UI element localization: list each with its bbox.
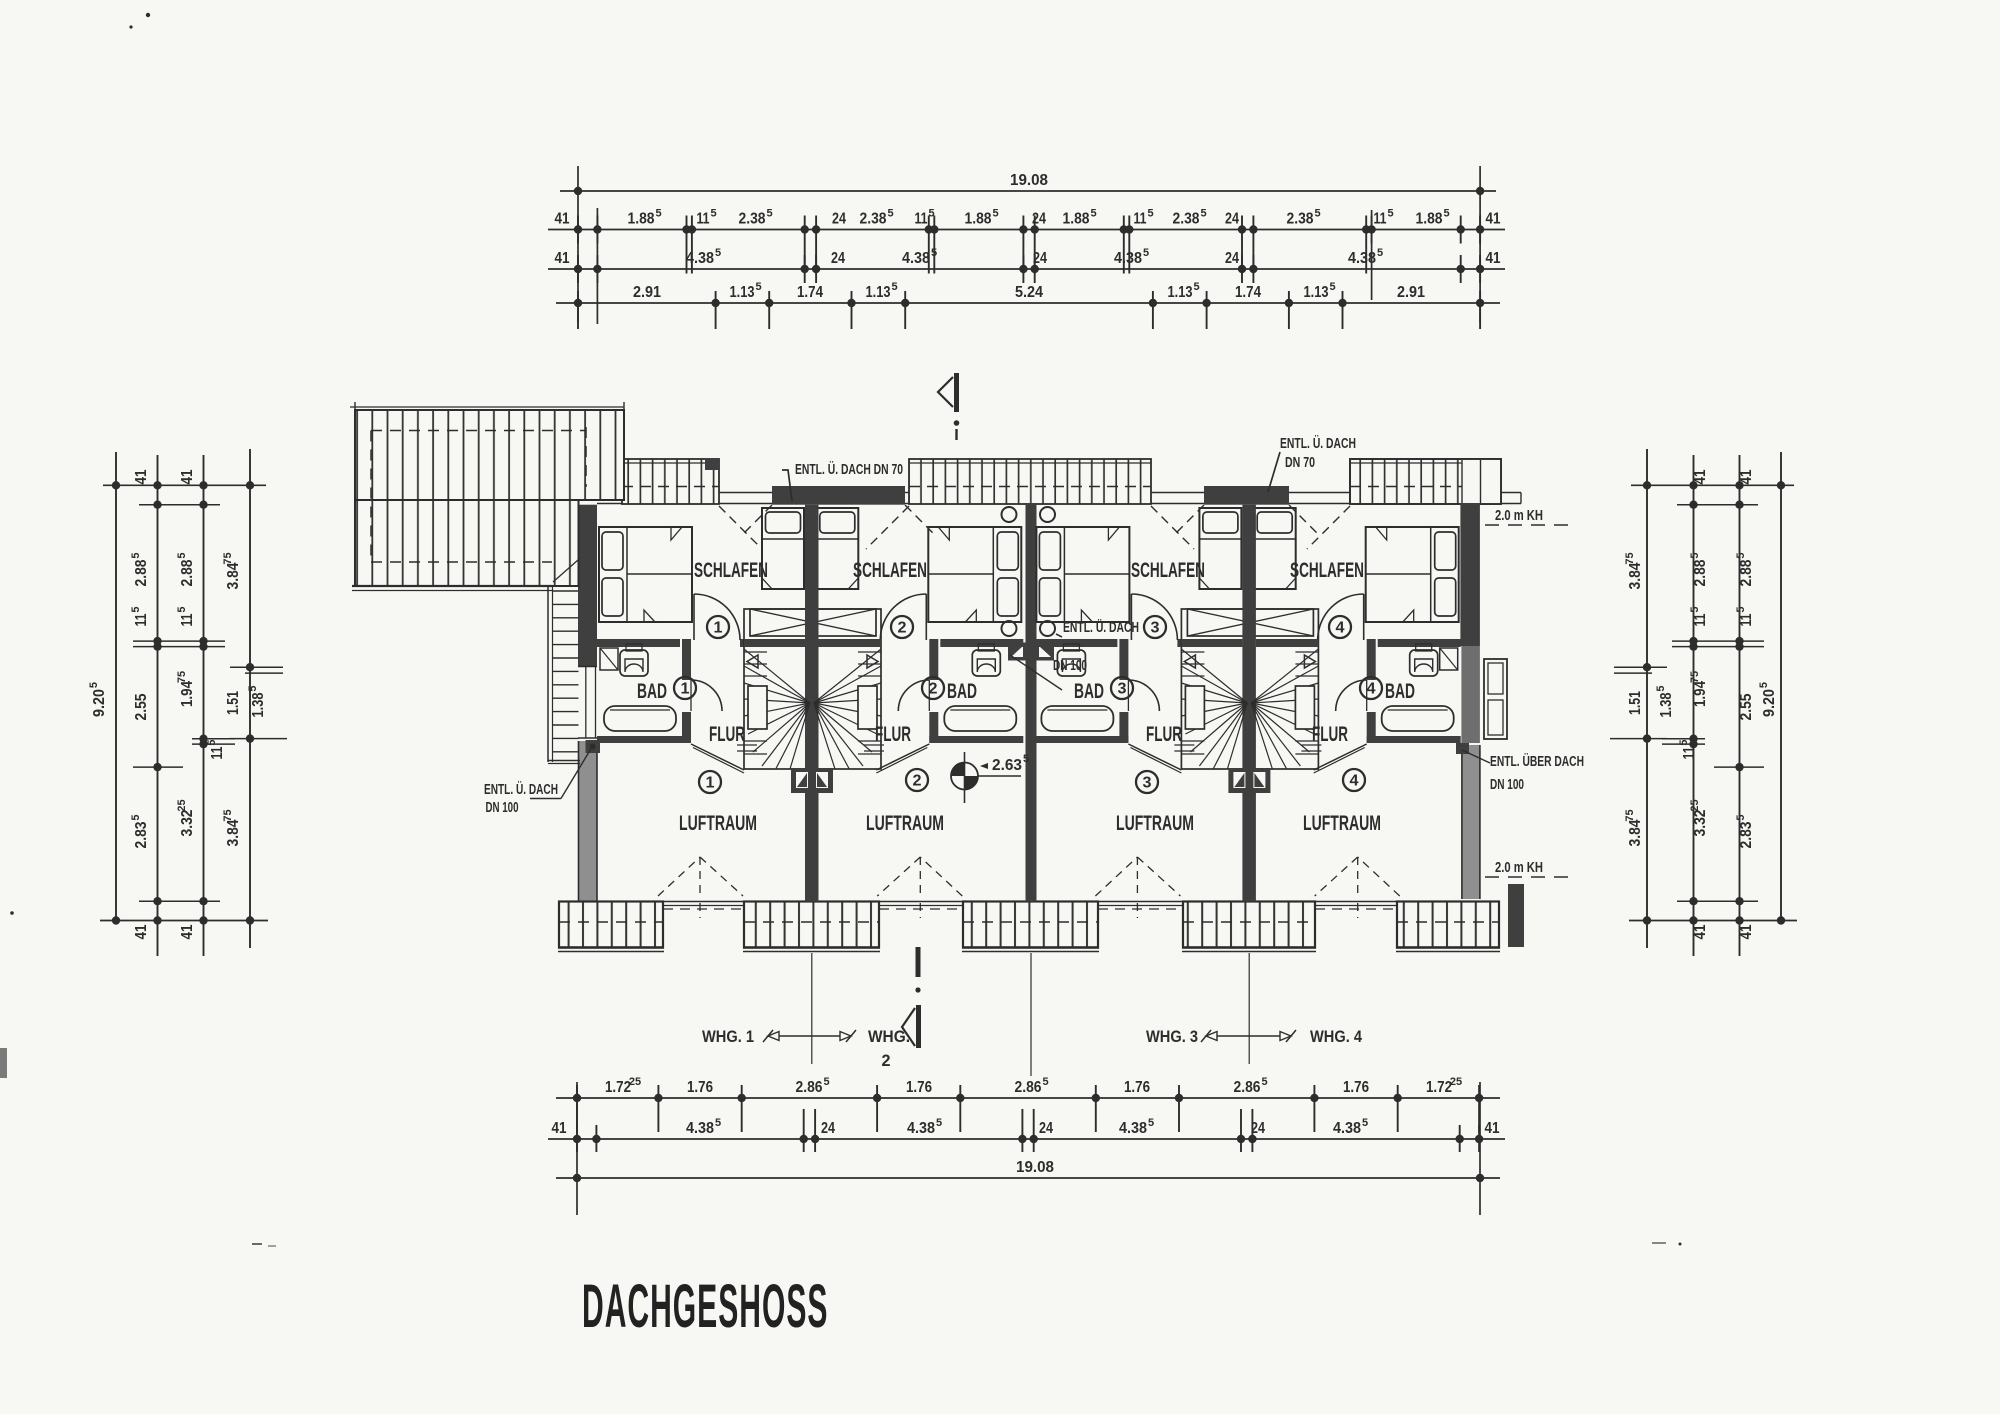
svg-text:3: 3: [1118, 681, 1127, 698]
svg-text:FLUR: FLUR: [1312, 723, 1348, 746]
svg-text:75: 75: [222, 552, 234, 564]
svg-text:11: 11: [915, 211, 928, 228]
svg-text:5: 5: [936, 1117, 942, 1129]
svg-text:5.24: 5.24: [1015, 284, 1043, 301]
svg-text:41: 41: [179, 924, 196, 939]
svg-text:11: 11: [133, 613, 150, 626]
svg-text:BAD: BAD: [1385, 680, 1415, 703]
svg-text:WHG.: WHG.: [868, 1027, 910, 1046]
svg-text:2.91: 2.91: [1397, 284, 1425, 301]
svg-text:5: 5: [1023, 753, 1029, 765]
svg-text:5: 5: [715, 1117, 721, 1129]
svg-text:75: 75: [222, 809, 234, 821]
svg-text:3.32: 3.32: [179, 810, 196, 837]
svg-text:1.88: 1.88: [628, 211, 655, 228]
svg-text:BAD: BAD: [637, 680, 667, 703]
svg-text:DN 100: DN 100: [486, 800, 519, 816]
svg-text:LUFTRAUM: LUFTRAUM: [679, 812, 757, 835]
svg-text:2.63: 2.63: [992, 757, 1022, 774]
svg-text:25: 25: [1689, 799, 1701, 811]
svg-text:2: 2: [898, 620, 907, 637]
svg-text:ENTL. ÜBER DACH: ENTL. ÜBER DACH: [1490, 753, 1584, 770]
svg-text:41: 41: [1486, 250, 1501, 267]
svg-text:5: 5: [1735, 552, 1747, 558]
svg-text:24: 24: [1225, 250, 1239, 267]
svg-text:5: 5: [655, 208, 661, 220]
svg-text:25: 25: [1450, 1076, 1462, 1088]
svg-text:41: 41: [1738, 924, 1755, 939]
svg-text:3: 3: [1143, 775, 1152, 792]
svg-text:4.38: 4.38: [686, 1120, 714, 1137]
svg-text:1.74: 1.74: [797, 284, 823, 301]
svg-text:1.38: 1.38: [1658, 692, 1675, 717]
svg-text:2: 2: [929, 681, 938, 698]
svg-text:41: 41: [1486, 211, 1501, 228]
svg-text:1.72: 1.72: [605, 1079, 631, 1096]
svg-text:2.86: 2.86: [796, 1079, 823, 1096]
svg-text:5: 5: [1200, 208, 1206, 220]
svg-text:2.38: 2.38: [739, 211, 766, 228]
svg-text:BAD: BAD: [947, 680, 977, 703]
svg-text:1.76: 1.76: [1343, 1079, 1369, 1096]
svg-text:2.55: 2.55: [133, 693, 150, 720]
svg-text:4.38: 4.38: [1114, 250, 1142, 267]
svg-text:5: 5: [1735, 606, 1747, 612]
svg-text:1.76: 1.76: [1124, 1079, 1150, 1096]
svg-text:11: 11: [697, 211, 710, 228]
svg-text:11: 11: [209, 746, 226, 759]
svg-text:5: 5: [1689, 552, 1701, 558]
svg-text:2.38: 2.38: [1287, 211, 1314, 228]
svg-text:BAD: BAD: [1074, 680, 1104, 703]
svg-text:5: 5: [1042, 1076, 1048, 1088]
svg-text:1.88: 1.88: [1416, 211, 1443, 228]
svg-text:41: 41: [1738, 469, 1755, 484]
svg-text:5: 5: [1735, 814, 1747, 820]
svg-text:24: 24: [1032, 211, 1046, 228]
svg-text:1.72: 1.72: [1426, 1079, 1452, 1096]
svg-text:41: 41: [133, 924, 150, 939]
svg-text:FLUR: FLUR: [709, 723, 745, 746]
svg-text:1.76: 1.76: [906, 1079, 932, 1096]
svg-text:4.38: 4.38: [902, 250, 930, 267]
svg-text:5: 5: [992, 208, 998, 220]
svg-text:SCHLAFEN: SCHLAFEN: [694, 559, 768, 582]
svg-text:24: 24: [1225, 211, 1239, 228]
svg-text:SCHLAFEN: SCHLAFEN: [1131, 559, 1205, 582]
svg-text:5: 5: [1329, 281, 1335, 293]
svg-text:4: 4: [1336, 620, 1345, 637]
svg-text:2.88: 2.88: [1738, 559, 1755, 586]
svg-text:11: 11: [1374, 211, 1387, 228]
svg-text:11: 11: [1134, 211, 1147, 228]
svg-text:3.32: 3.32: [1692, 810, 1709, 837]
svg-text:1.13: 1.13: [866, 284, 891, 301]
svg-text:24: 24: [1033, 250, 1047, 267]
svg-text:19.08: 19.08: [1010, 172, 1048, 189]
svg-text:4.38: 4.38: [1348, 250, 1376, 267]
svg-text:5: 5: [1148, 1117, 1154, 1129]
svg-text:2.88: 2.88: [1692, 559, 1709, 586]
svg-text:75: 75: [176, 671, 188, 683]
svg-text:1.88: 1.88: [1063, 211, 1090, 228]
svg-text:1.38: 1.38: [250, 692, 267, 717]
svg-text:5: 5: [1689, 606, 1701, 612]
svg-text:1: 1: [681, 681, 690, 698]
svg-text:2: 2: [913, 773, 922, 790]
svg-text:5: 5: [891, 281, 897, 293]
svg-text:DACHGESHOSS: DACHGESHOSS: [582, 1272, 828, 1340]
svg-text:5: 5: [715, 247, 721, 259]
svg-text:4.38: 4.38: [686, 250, 714, 267]
svg-text:4.38: 4.38: [1333, 1120, 1361, 1137]
svg-text:5: 5: [931, 247, 937, 259]
svg-text:1.94: 1.94: [179, 681, 196, 707]
svg-text:LUFTRAUM: LUFTRAUM: [866, 812, 944, 835]
svg-text:4: 4: [1350, 773, 1359, 790]
svg-text:4.38: 4.38: [907, 1120, 935, 1137]
svg-text:41: 41: [133, 469, 150, 484]
svg-text:5: 5: [1387, 208, 1393, 220]
svg-text:5: 5: [1314, 208, 1320, 220]
svg-text:WHG. 3: WHG. 3: [1146, 1027, 1198, 1046]
svg-text:5: 5: [130, 552, 142, 558]
svg-text:5: 5: [710, 208, 716, 220]
svg-text:LUFTRAUM: LUFTRAUM: [1303, 812, 1381, 835]
svg-text:2.86: 2.86: [1234, 1079, 1261, 1096]
svg-text:FLUR: FLUR: [1146, 723, 1182, 746]
svg-text:3.84: 3.84: [1627, 562, 1644, 589]
svg-text:ENTL. Ü. DACH: ENTL. Ü. DACH: [484, 781, 558, 798]
svg-text:11: 11: [179, 613, 196, 626]
svg-text:41: 41: [1692, 924, 1709, 939]
svg-text:1.94: 1.94: [1692, 681, 1709, 707]
svg-text:25: 25: [176, 799, 188, 811]
svg-text:41: 41: [555, 211, 570, 228]
svg-text:5: 5: [1261, 1076, 1267, 1088]
svg-text:24: 24: [832, 211, 846, 228]
svg-text:5: 5: [766, 208, 772, 220]
svg-text:24: 24: [821, 1120, 835, 1137]
svg-text:2.88: 2.88: [179, 559, 196, 586]
svg-text:5: 5: [130, 606, 142, 612]
svg-text:5: 5: [247, 685, 259, 691]
svg-text:24: 24: [831, 250, 845, 267]
svg-text:1: 1: [706, 775, 715, 792]
svg-text:11: 11: [1681, 746, 1698, 759]
svg-text:3.84: 3.84: [225, 819, 242, 846]
svg-text:41: 41: [552, 1120, 567, 1137]
svg-text:25: 25: [629, 1076, 641, 1088]
svg-text:1.13: 1.13: [1304, 284, 1329, 301]
svg-text:WHG. 4: WHG. 4: [1310, 1027, 1362, 1046]
svg-text:5: 5: [1377, 247, 1383, 259]
svg-text:3: 3: [1151, 620, 1160, 637]
svg-text:3.84: 3.84: [1627, 819, 1644, 846]
svg-text:DN 70: DN 70: [1285, 455, 1315, 471]
svg-text:75: 75: [1689, 671, 1701, 683]
svg-text:1.76: 1.76: [687, 1079, 713, 1096]
svg-text:5: 5: [823, 1076, 829, 1088]
svg-text:5: 5: [130, 814, 142, 820]
svg-text:WHG. 1: WHG. 1: [702, 1027, 754, 1046]
svg-text:5: 5: [1758, 682, 1770, 688]
svg-text:5: 5: [176, 606, 188, 612]
svg-text:DN 100: DN 100: [1490, 777, 1524, 793]
svg-text:2.91: 2.91: [633, 284, 661, 301]
svg-text:2.88: 2.88: [133, 559, 150, 586]
svg-text:1.13: 1.13: [1168, 284, 1193, 301]
svg-text:5: 5: [1443, 208, 1449, 220]
svg-text:11: 11: [1692, 613, 1709, 626]
svg-text:2.0 m KH: 2.0 m KH: [1495, 508, 1543, 524]
svg-text:24: 24: [1251, 1120, 1265, 1137]
svg-text:2.38: 2.38: [860, 211, 887, 228]
svg-text:2.55: 2.55: [1738, 693, 1755, 720]
svg-text:5: 5: [1655, 685, 1667, 691]
svg-text:1.51: 1.51: [1627, 691, 1644, 715]
svg-text:FLUR: FLUR: [875, 723, 911, 746]
svg-text:5: 5: [88, 682, 100, 688]
svg-text:41: 41: [1485, 1120, 1500, 1137]
svg-text:41: 41: [1692, 469, 1709, 484]
svg-text:5: 5: [1362, 1117, 1368, 1129]
svg-text:41: 41: [179, 469, 196, 484]
svg-text:41: 41: [555, 250, 570, 267]
svg-text:2.38: 2.38: [1173, 211, 1200, 228]
svg-text:1: 1: [714, 620, 723, 637]
svg-text:5: 5: [1147, 208, 1153, 220]
svg-text:ENTL. Ü. DACH DN 70: ENTL. Ü. DACH DN 70: [795, 461, 903, 478]
svg-text:LUFTRAUM: LUFTRAUM: [1116, 812, 1194, 835]
svg-text:5: 5: [1143, 247, 1149, 259]
svg-text:3.84: 3.84: [225, 562, 242, 589]
svg-text:1.13: 1.13: [730, 284, 755, 301]
svg-text:2.86: 2.86: [1015, 1079, 1042, 1096]
svg-text:4.38: 4.38: [1119, 1120, 1147, 1137]
svg-text:9.20: 9.20: [91, 689, 108, 717]
svg-text:24: 24: [1039, 1120, 1053, 1137]
svg-text:5: 5: [887, 208, 893, 220]
svg-text:19.08: 19.08: [1016, 1159, 1054, 1176]
svg-text:5: 5: [755, 281, 761, 293]
svg-text:2.83: 2.83: [1738, 821, 1755, 848]
svg-text:1.51: 1.51: [225, 691, 242, 715]
svg-text:SCHLAFEN: SCHLAFEN: [1290, 559, 1364, 582]
svg-text:5: 5: [928, 208, 934, 220]
svg-text:ENTL. Ü. DACH: ENTL. Ü. DACH: [1280, 435, 1356, 452]
svg-text:4: 4: [1367, 681, 1376, 698]
svg-text:5: 5: [1090, 208, 1096, 220]
svg-text:75: 75: [1624, 809, 1636, 821]
svg-text:5: 5: [1678, 739, 1690, 745]
svg-text:5: 5: [206, 739, 218, 745]
svg-text:SCHLAFEN: SCHLAFEN: [853, 559, 927, 582]
svg-text:1.88: 1.88: [965, 211, 992, 228]
svg-text:2.0 m KH: 2.0 m KH: [1495, 860, 1543, 876]
svg-text:1.74: 1.74: [1235, 284, 1261, 301]
svg-text:75: 75: [1624, 552, 1636, 564]
svg-text:9.20: 9.20: [1761, 689, 1778, 717]
svg-text:2.83: 2.83: [133, 821, 150, 848]
svg-text:5: 5: [1193, 281, 1199, 293]
svg-text:11: 11: [1738, 613, 1755, 626]
svg-text:5: 5: [176, 552, 188, 558]
svg-text:2: 2: [882, 1051, 891, 1070]
